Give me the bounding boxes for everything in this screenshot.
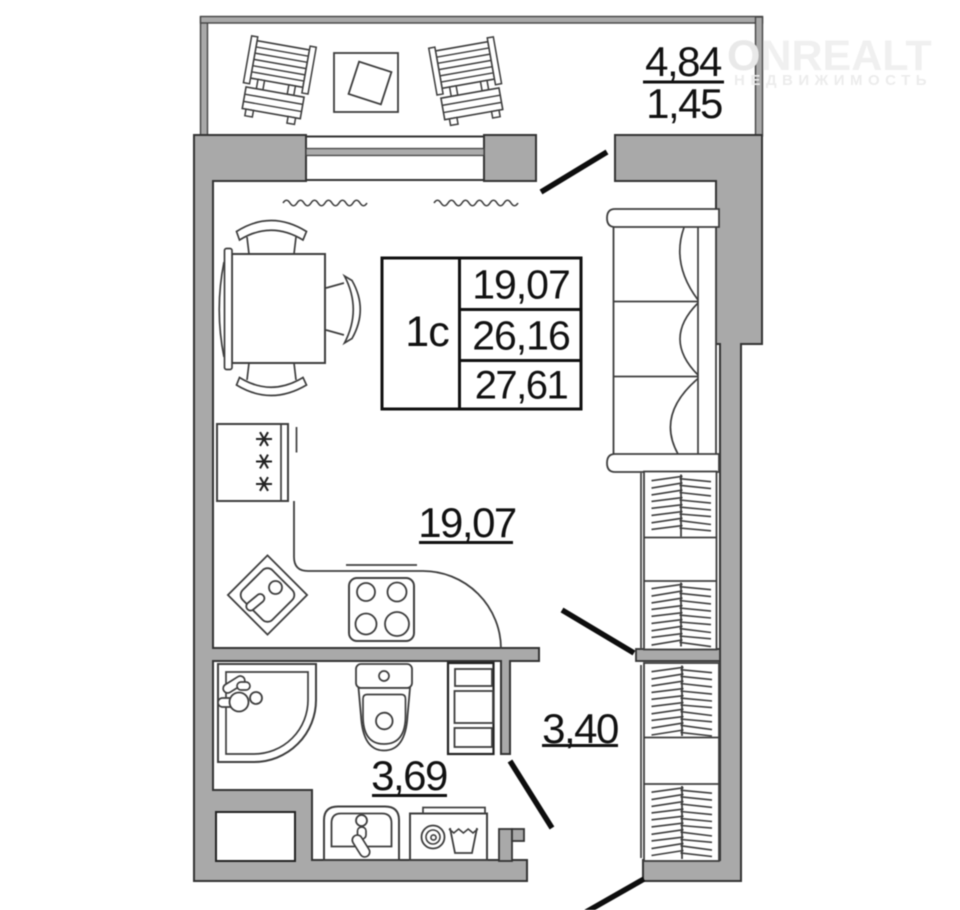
svg-text:19,07: 19,07: [418, 499, 516, 546]
svg-text:1c: 1c: [405, 308, 449, 356]
svg-text:4,84: 4,84: [645, 38, 722, 85]
svg-text:26,16: 26,16: [472, 313, 570, 359]
svg-text:1,45: 1,45: [646, 80, 722, 127]
svg-text:27,61: 27,61: [475, 364, 568, 408]
svg-text:19,07: 19,07: [472, 262, 570, 308]
svg-text:НЕДВИЖИМОСТЬ: НЕДВИЖИМОСТЬ: [734, 72, 932, 89]
svg-text:3,69: 3,69: [371, 752, 447, 799]
